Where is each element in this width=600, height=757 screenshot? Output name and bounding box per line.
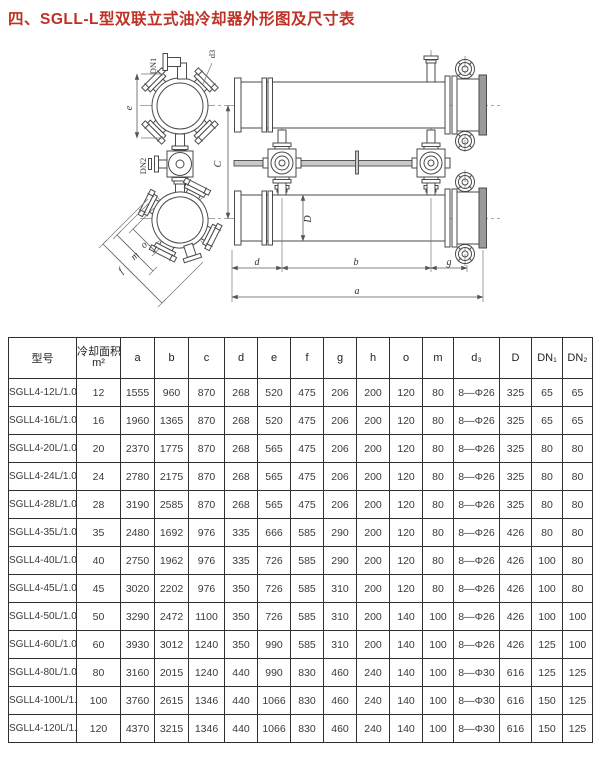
- table-cell: 585: [291, 519, 324, 547]
- table-cell: 1346: [189, 715, 225, 743]
- table-cell: 1100: [189, 603, 225, 631]
- document-page: 四、SGLL-L型双联立式油冷却器外形图及尺寸表: [0, 0, 600, 757]
- col-header-d: d: [225, 338, 258, 379]
- shell-bottom: [235, 186, 487, 249]
- table-cell: 976: [189, 547, 225, 575]
- table-cell: 65: [532, 407, 563, 435]
- table-cell: 60: [77, 631, 121, 659]
- table-cell: 2175: [155, 463, 189, 491]
- table-cell: 2202: [155, 575, 189, 603]
- table-cell: 206: [324, 463, 357, 491]
- table-cell: 120: [390, 379, 423, 407]
- table-cell: 2780: [121, 463, 155, 491]
- table-cell: 80: [77, 659, 121, 687]
- label-c: C: [213, 160, 224, 167]
- table-cell: 120: [390, 491, 423, 519]
- label-D: D: [303, 215, 314, 224]
- table-cell: 4370: [121, 715, 155, 743]
- table-cell: 80: [532, 463, 563, 491]
- table-cell: 80: [563, 547, 593, 575]
- table-cell: 200: [357, 547, 390, 575]
- table-cell: 150: [532, 715, 563, 743]
- table-cell: 24: [77, 463, 121, 491]
- table-cell: SGLL4-40L/1.0: [9, 547, 77, 575]
- table-row: SGLL4-12L/1.0121555960870268520475206200…: [9, 379, 593, 407]
- table-cell: 120: [390, 463, 423, 491]
- table-cell: 2370: [121, 435, 155, 463]
- table-cell: 585: [291, 575, 324, 603]
- table-cell: 140: [390, 603, 423, 631]
- table-cell: 426: [500, 631, 532, 659]
- table-cell: 100: [423, 631, 454, 659]
- table-cell: 268: [225, 435, 258, 463]
- table-cell: 8—Φ26: [454, 435, 500, 463]
- table-cell: 616: [500, 659, 532, 687]
- table-row: SGLL4-20L/1.0202370177587026856547520620…: [9, 435, 593, 463]
- table-cell: 585: [291, 631, 324, 659]
- table-cell: SGLL4-80L/1.0: [9, 659, 77, 687]
- table-cell: 426: [500, 547, 532, 575]
- col-header-b: b: [155, 338, 189, 379]
- table-row: SGLL4-60L/1.0603930301212403509905853102…: [9, 631, 593, 659]
- table-cell: 3190: [121, 491, 155, 519]
- table-cell: 2585: [155, 491, 189, 519]
- table-cell: 976: [189, 575, 225, 603]
- table-cell: 80: [423, 547, 454, 575]
- table-cell: 1962: [155, 547, 189, 575]
- table-cell: 565: [258, 463, 291, 491]
- label-dn1: DN1: [148, 58, 158, 75]
- table-cell: 3760: [121, 687, 155, 715]
- table-row: SGLL4-120L/1.012043703215134644010668304…: [9, 715, 593, 743]
- table-cell: 830: [291, 659, 324, 687]
- table-cell: 290: [324, 547, 357, 575]
- table-cell: 325: [500, 463, 532, 491]
- table-cell: 1960: [121, 407, 155, 435]
- table-cell: 100: [563, 603, 593, 631]
- col-header-model: 型号: [9, 338, 77, 379]
- table-cell: 50: [77, 603, 121, 631]
- table-cell: 2472: [155, 603, 189, 631]
- table-cell: 8—Φ26: [454, 519, 500, 547]
- table-cell: 200: [357, 631, 390, 659]
- label-d: d: [255, 257, 261, 268]
- table-cell: 350: [225, 631, 258, 659]
- table-cell: 475: [291, 435, 324, 463]
- table-cell: SGLL4-12L/1.0: [9, 379, 77, 407]
- table-cell: 976: [189, 519, 225, 547]
- table-cell: 460: [324, 659, 357, 687]
- table-cell: 2015: [155, 659, 189, 687]
- table-cell: 565: [258, 491, 291, 519]
- table-cell: 616: [500, 715, 532, 743]
- table-cell: 830: [291, 715, 324, 743]
- col-header-area-line2: m²: [77, 358, 120, 369]
- table-cell: 8—Φ30: [454, 687, 500, 715]
- table-cell: 2750: [121, 547, 155, 575]
- table-cell: 616: [500, 687, 532, 715]
- table-cell: 200: [357, 603, 390, 631]
- table-cell: 200: [357, 575, 390, 603]
- table-cell: 140: [390, 715, 423, 743]
- table-cell: 1555: [121, 379, 155, 407]
- table-cell: 2615: [155, 687, 189, 715]
- table-cell: 120: [390, 575, 423, 603]
- table-row: SGLL4-28L/1.0283190258587026856547520620…: [9, 491, 593, 519]
- table-cell: 290: [324, 519, 357, 547]
- table-cell: 475: [291, 463, 324, 491]
- table-cell: 100: [532, 575, 563, 603]
- technical-drawing: d3 DN1 e DN2: [0, 40, 600, 340]
- table-cell: 475: [291, 379, 324, 407]
- table-cell: 65: [532, 379, 563, 407]
- table-cell: 870: [189, 435, 225, 463]
- table-cell: 120: [390, 519, 423, 547]
- table-cell: 8—Φ26: [454, 575, 500, 603]
- table-row: SGLL4-45L/1.0453020220297635072658531020…: [9, 575, 593, 603]
- col-header-c: c: [189, 338, 225, 379]
- table-cell: 200: [357, 463, 390, 491]
- label-f: f: [116, 265, 127, 276]
- table-cell: 960: [155, 379, 189, 407]
- table-cell: 565: [258, 435, 291, 463]
- table-cell: 100: [77, 687, 121, 715]
- table-cell: 268: [225, 379, 258, 407]
- table-cell: 726: [258, 547, 291, 575]
- col-header-d3: d₃: [454, 338, 500, 379]
- table-cell: 475: [291, 407, 324, 435]
- table-cell: 520: [258, 379, 291, 407]
- table-cell: 100: [423, 687, 454, 715]
- dimension-table: 型号 冷却面积 m² a b c d e f g h o m d₃: [8, 337, 593, 743]
- table-cell: 585: [291, 603, 324, 631]
- table-cell: SGLL4-28L/1.0: [9, 491, 77, 519]
- table-cell: 426: [500, 519, 532, 547]
- table-cell: 310: [324, 575, 357, 603]
- table-cell: 120: [390, 407, 423, 435]
- table-cell: 335: [225, 519, 258, 547]
- table-cell: 80: [563, 491, 593, 519]
- table-cell: 100: [423, 715, 454, 743]
- label-a: a: [355, 286, 360, 297]
- table-cell: 65: [563, 407, 593, 435]
- table-cell: 28: [77, 491, 121, 519]
- table-cell: 100: [532, 603, 563, 631]
- table-cell: 120: [390, 435, 423, 463]
- table-cell: 1365: [155, 407, 189, 435]
- table-cell: 325: [500, 435, 532, 463]
- label-g: g: [447, 257, 452, 268]
- table-cell: 870: [189, 407, 225, 435]
- table-cell: 8—Φ26: [454, 407, 500, 435]
- label-o: o: [139, 240, 150, 251]
- table-cell: SGLL4-35L/1.0: [9, 519, 77, 547]
- label-b: b: [354, 257, 359, 268]
- table-cell: 120: [390, 547, 423, 575]
- col-header-D: D: [500, 338, 532, 379]
- table-cell: 440: [225, 659, 258, 687]
- table-cell: 100: [423, 659, 454, 687]
- table-cell: 1066: [258, 715, 291, 743]
- col-header-g: g: [324, 338, 357, 379]
- table-cell: 140: [390, 631, 423, 659]
- table-row: SGLL4-16L/1.0161960136587026852047520620…: [9, 407, 593, 435]
- table-cell: 726: [258, 575, 291, 603]
- table-cell: 310: [324, 631, 357, 659]
- table-cell: 3012: [155, 631, 189, 659]
- table-cell: 80: [423, 519, 454, 547]
- table-cell: 80: [563, 463, 593, 491]
- table-cell: SGLL4-16L/1.0: [9, 407, 77, 435]
- table-row: SGLL4-100L/1.010037602615134644010668304…: [9, 687, 593, 715]
- table-cell: 1346: [189, 687, 225, 715]
- table-cell: 100: [563, 631, 593, 659]
- dimension-table-wrap: 型号 冷却面积 m² a b c d e f g h o m d₃: [8, 337, 592, 743]
- table-cell: 140: [390, 659, 423, 687]
- col-header-f: f: [291, 338, 324, 379]
- table-cell: SGLL4-100L/1.0: [9, 687, 77, 715]
- table-cell: 200: [357, 519, 390, 547]
- table-row: SGLL4-50L/1.0503290247211003507265853102…: [9, 603, 593, 631]
- col-header-dn2: DN₂: [563, 338, 593, 379]
- table-cell: 80: [532, 435, 563, 463]
- table-cell: 125: [532, 631, 563, 659]
- table-cell: 120: [77, 715, 121, 743]
- table-cell: 726: [258, 603, 291, 631]
- table-cell: 125: [532, 659, 563, 687]
- table-cell: SGLL4-45L/1.0: [9, 575, 77, 603]
- table-cell: 8—Φ30: [454, 659, 500, 687]
- table-cell: 310: [324, 603, 357, 631]
- table-header-row: 型号 冷却面积 m² a b c d e f g h o m d₃: [9, 338, 593, 379]
- table-cell: 200: [357, 491, 390, 519]
- table-row: SGLL4-24L/1.0242780217587026856547520620…: [9, 463, 593, 491]
- table-cell: SGLL4-20L/1.0: [9, 435, 77, 463]
- table-cell: 325: [500, 491, 532, 519]
- table-cell: 3930: [121, 631, 155, 659]
- table-cell: 1775: [155, 435, 189, 463]
- table-cell: 125: [563, 687, 593, 715]
- table-cell: 870: [189, 491, 225, 519]
- table-cell: 8—Φ26: [454, 379, 500, 407]
- table-cell: 475: [291, 491, 324, 519]
- table-row: SGLL4-80L/1.0803160201512404409908304602…: [9, 659, 593, 687]
- table-cell: 350: [225, 575, 258, 603]
- table-cell: 80: [423, 407, 454, 435]
- table-cell: 240: [357, 715, 390, 743]
- table-row: SGLL4-35L/1.0352480169297633566658529020…: [9, 519, 593, 547]
- table-cell: 1692: [155, 519, 189, 547]
- table-cell: 268: [225, 463, 258, 491]
- table-cell: 8—Φ26: [454, 491, 500, 519]
- table-cell: 426: [500, 603, 532, 631]
- table-cell: SGLL4-24L/1.0: [9, 463, 77, 491]
- table-cell: 20: [77, 435, 121, 463]
- table-cell: 80: [423, 575, 454, 603]
- table-cell: SGLL4-120L/1.0: [9, 715, 77, 743]
- table-cell: 35: [77, 519, 121, 547]
- table-cell: 426: [500, 575, 532, 603]
- table-header: 型号 冷却面积 m² a b c d e f g h o m d₃: [9, 338, 593, 379]
- table-cell: 8—Φ26: [454, 603, 500, 631]
- table-cell: 80: [423, 463, 454, 491]
- table-cell: 520: [258, 407, 291, 435]
- table-cell: 1066: [258, 687, 291, 715]
- table-cell: 40: [77, 547, 121, 575]
- col-header-m: m: [423, 338, 454, 379]
- table-cell: 3020: [121, 575, 155, 603]
- table-cell: 206: [324, 435, 357, 463]
- table-cell: 100: [532, 547, 563, 575]
- table-cell: 1240: [189, 631, 225, 659]
- label-d3: d3: [207, 50, 217, 59]
- table-cell: 65: [563, 379, 593, 407]
- table-cell: 125: [563, 659, 593, 687]
- table-cell: 200: [357, 435, 390, 463]
- table-cell: 268: [225, 407, 258, 435]
- table-cell: 325: [500, 379, 532, 407]
- table-cell: 585: [291, 547, 324, 575]
- table-cell: 206: [324, 407, 357, 435]
- table-cell: 268: [225, 491, 258, 519]
- table-cell: 2480: [121, 519, 155, 547]
- table-cell: 80: [532, 519, 563, 547]
- table-cell: 990: [258, 659, 291, 687]
- col-header-o: o: [390, 338, 423, 379]
- table-cell: 3215: [155, 715, 189, 743]
- table-cell: 125: [563, 715, 593, 743]
- table-cell: 240: [357, 687, 390, 715]
- table-cell: 8—Φ26: [454, 463, 500, 491]
- table-cell: SGLL4-50L/1.0: [9, 603, 77, 631]
- table-cell: 8—Φ26: [454, 631, 500, 659]
- shell-top: [235, 56, 487, 135]
- table-cell: 240: [357, 659, 390, 687]
- table-cell: SGLL4-60L/1.0: [9, 631, 77, 659]
- table-cell: 8—Φ30: [454, 715, 500, 743]
- table-cell: 440: [225, 715, 258, 743]
- col-header-dn1: DN₁: [532, 338, 563, 379]
- table-cell: 3290: [121, 603, 155, 631]
- col-header-a: a: [121, 338, 155, 379]
- table-cell: 140: [390, 687, 423, 715]
- table-cell: 80: [532, 491, 563, 519]
- table-cell: 80: [423, 379, 454, 407]
- table-row: SGLL4-40L/1.0402750196297633572658529020…: [9, 547, 593, 575]
- table-cell: 460: [324, 687, 357, 715]
- table-cell: 200: [357, 407, 390, 435]
- table-cell: 206: [324, 379, 357, 407]
- table-cell: 80: [563, 519, 593, 547]
- table-cell: 335: [225, 547, 258, 575]
- col-header-h: h: [357, 338, 390, 379]
- table-cell: 80: [563, 575, 593, 603]
- table-cell: 440: [225, 687, 258, 715]
- table-cell: 830: [291, 687, 324, 715]
- table-cell: 870: [189, 379, 225, 407]
- table-cell: 460: [324, 715, 357, 743]
- col-header-e: e: [258, 338, 291, 379]
- table-cell: 45: [77, 575, 121, 603]
- label-dn2: DN2: [138, 158, 148, 175]
- table-cell: 16: [77, 407, 121, 435]
- table-cell: 666: [258, 519, 291, 547]
- table-cell: 870: [189, 463, 225, 491]
- table-cell: 1240: [189, 659, 225, 687]
- table-cell: 80: [563, 435, 593, 463]
- table-cell: 100: [423, 603, 454, 631]
- page-title: 四、SGLL-L型双联立式油冷却器外形图及尺寸表: [8, 7, 355, 29]
- label-m: m: [129, 250, 142, 263]
- table-body: SGLL4-12L/1.0121555960870268520475206200…: [9, 379, 593, 743]
- table-cell: 12: [77, 379, 121, 407]
- tie-rod: [234, 161, 417, 167]
- table-cell: 325: [500, 407, 532, 435]
- tie-rod-bar: [356, 151, 359, 174]
- table-cell: 80: [423, 491, 454, 519]
- table-cell: 8—Φ26: [454, 547, 500, 575]
- table-cell: 200: [357, 379, 390, 407]
- table-cell: 206: [324, 491, 357, 519]
- table-cell: 3160: [121, 659, 155, 687]
- label-e: e: [124, 105, 135, 110]
- table-cell: 350: [225, 603, 258, 631]
- col-header-area: 冷却面积 m²: [77, 338, 121, 379]
- table-cell: 150: [532, 687, 563, 715]
- table-cell: 990: [258, 631, 291, 659]
- table-cell: 80: [423, 435, 454, 463]
